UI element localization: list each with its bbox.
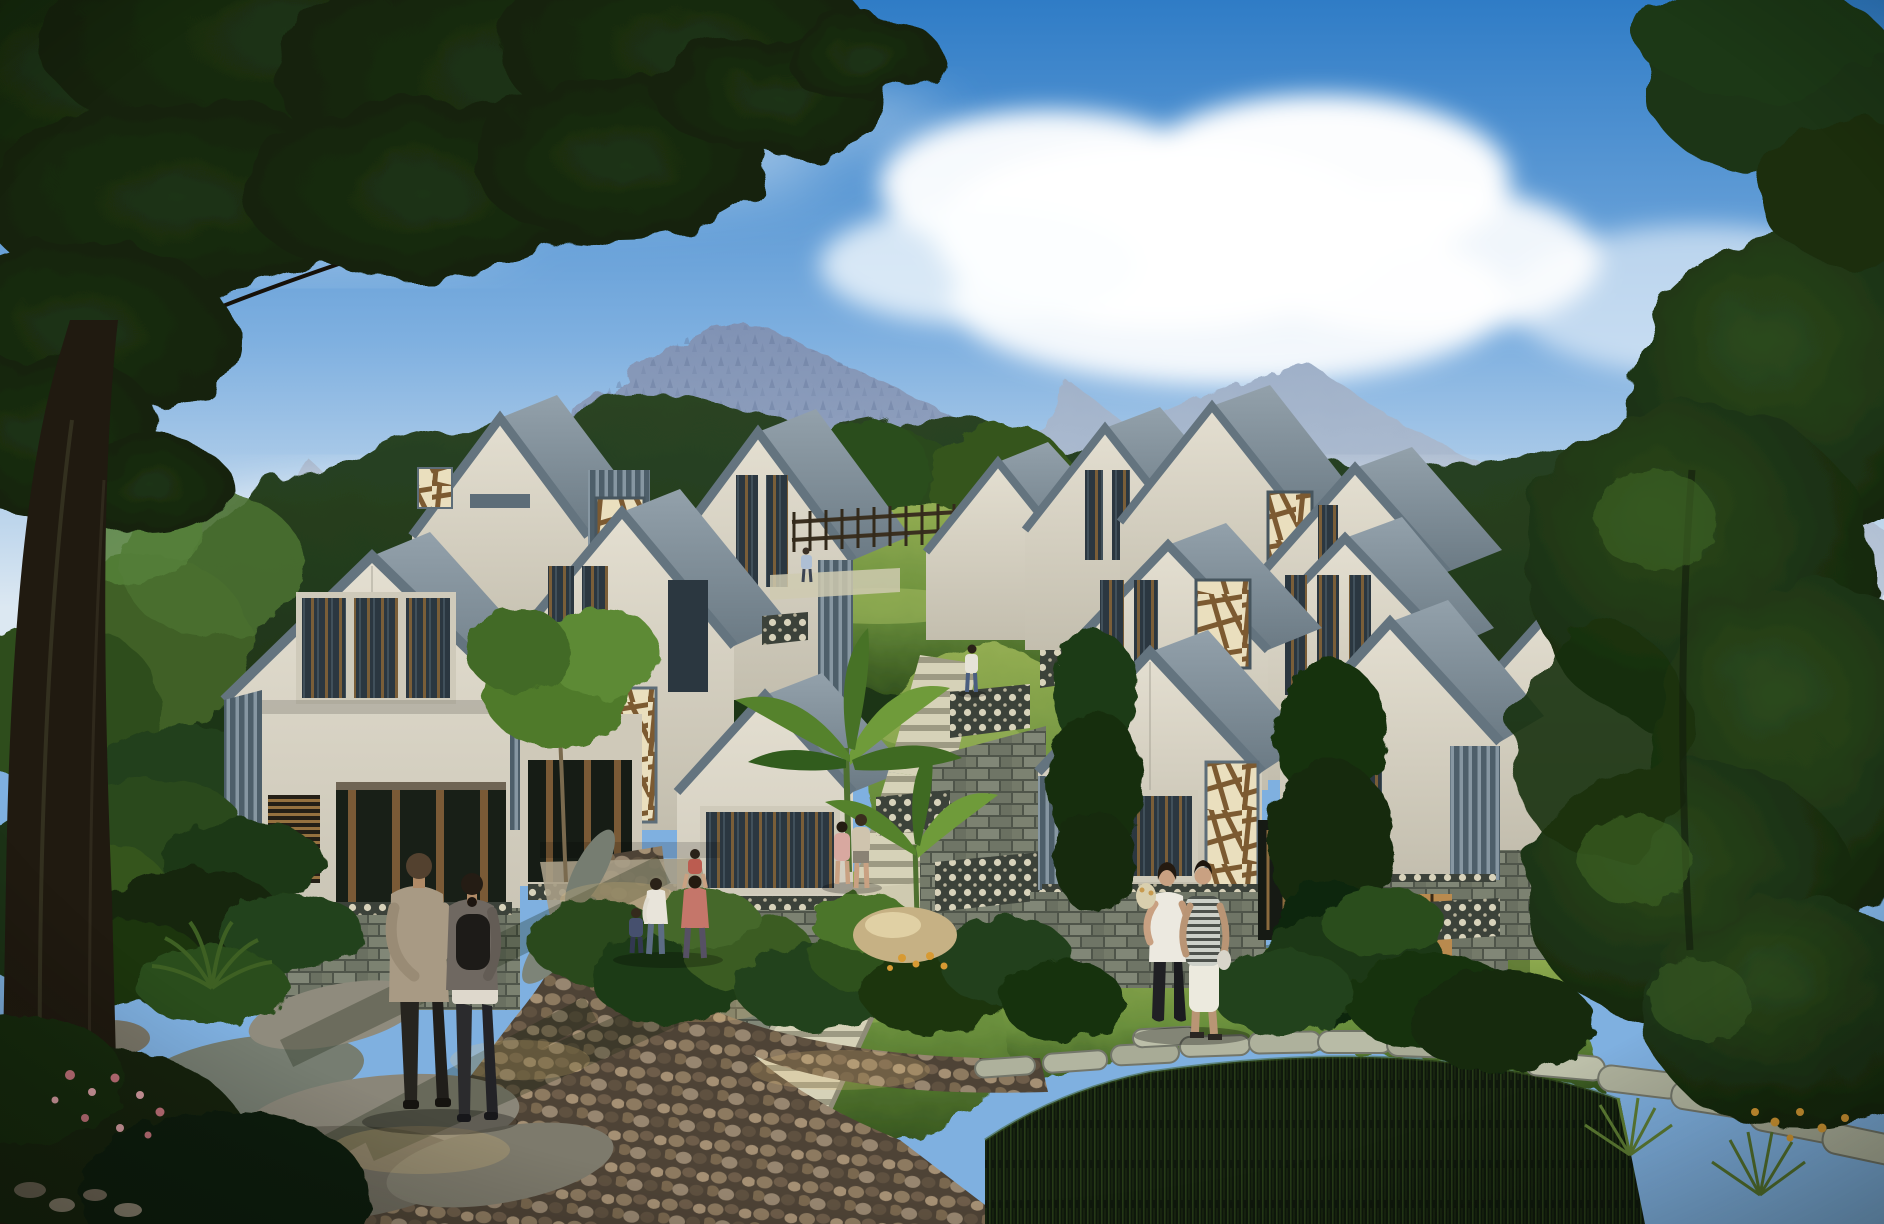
- vignette-overlay: [0, 0, 1884, 1224]
- villa-complex-rendering: [0, 0, 1884, 1224]
- rendering-canvas: [0, 0, 1884, 1224]
